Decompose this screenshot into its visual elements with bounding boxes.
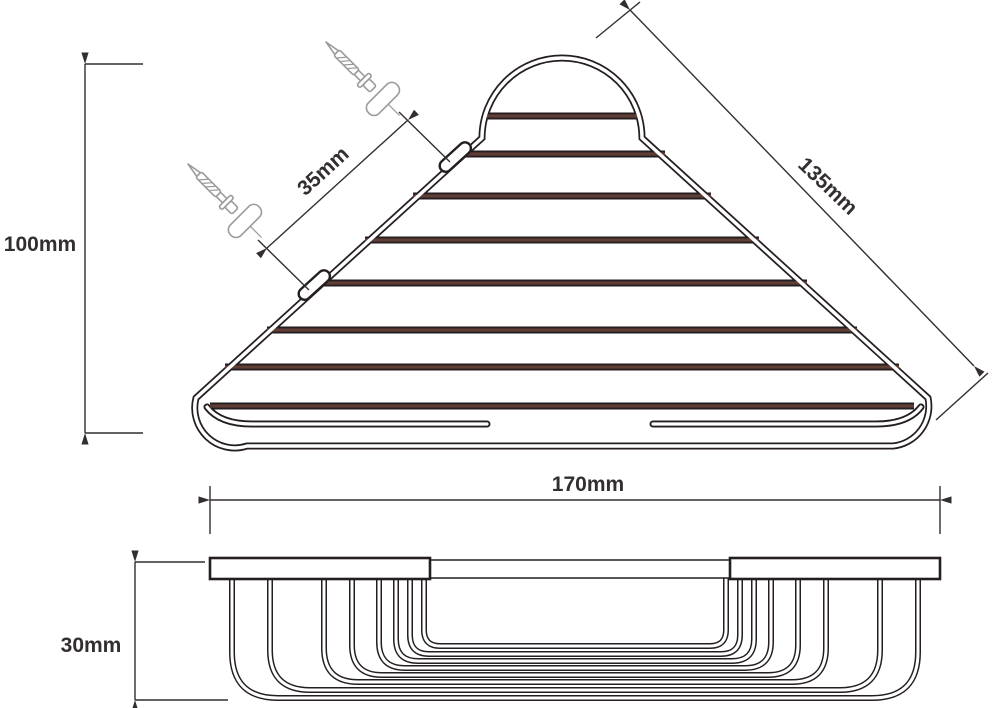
rim-rail-back xyxy=(430,560,730,578)
dimension-mount-spacing: 35mm xyxy=(258,112,450,290)
drawing-canvas: 100mm 35mm 135mm 170mm 30mm xyxy=(0,0,992,708)
dimension-line xyxy=(630,10,974,366)
mounting-screw-icon xyxy=(312,28,414,130)
extension-line xyxy=(596,2,988,420)
extension-line xyxy=(258,112,450,290)
extension-line xyxy=(135,562,228,700)
dimension-label: 35mm xyxy=(293,142,353,200)
dimension-label: 135mm xyxy=(793,153,861,220)
dimension-label: 170mm xyxy=(552,473,624,496)
dimension-height: 100mm xyxy=(4,64,143,433)
rim-rail-right xyxy=(730,558,940,579)
rim-rail-left xyxy=(210,558,430,579)
dimension-edge: 135mm xyxy=(596,2,988,420)
dimension-label: 100mm xyxy=(4,233,76,256)
nested-wire-profile xyxy=(232,578,918,698)
top-view-drawing xyxy=(174,28,929,448)
mounting-screw-icon xyxy=(174,150,276,252)
bottom-hook-wires xyxy=(207,407,921,424)
dimension-depth: 30mm xyxy=(61,562,228,700)
dimension-label: 30mm xyxy=(61,634,122,657)
corner-basket-technical-drawing: 100mm 35mm 135mm 170mm 30mm xyxy=(0,0,992,708)
side-view-drawing xyxy=(210,558,940,698)
extension-line xyxy=(85,64,143,433)
dimension-width: 170mm xyxy=(210,473,940,534)
